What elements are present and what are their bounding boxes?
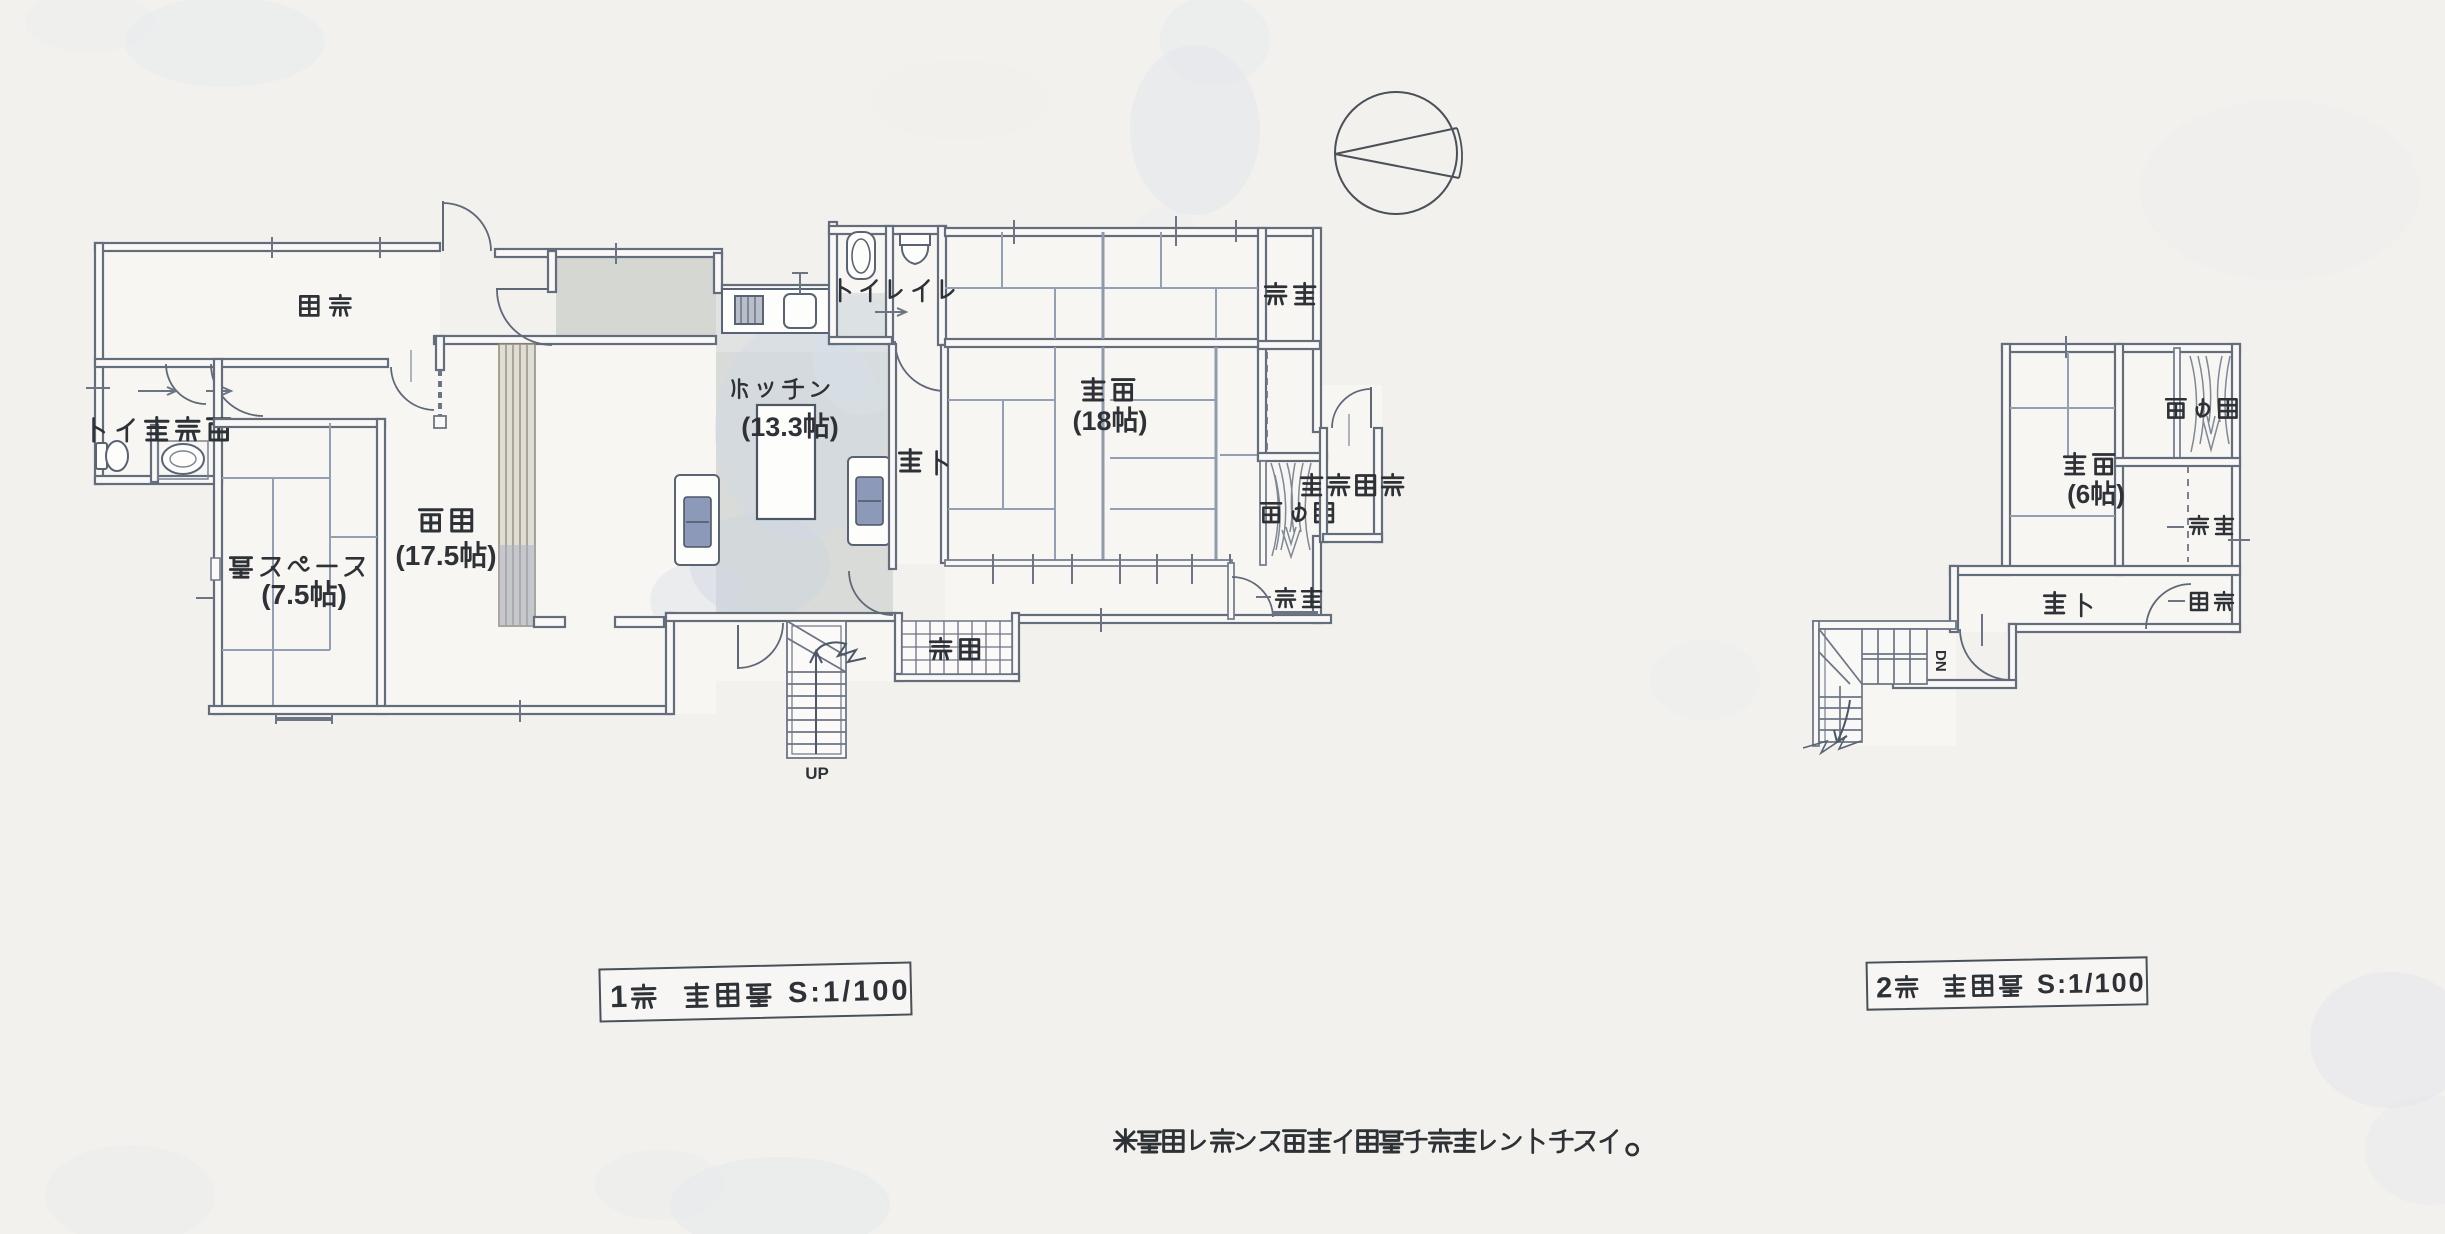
svg-text:S:1/100: S:1/100 [2037, 967, 2146, 999]
svg-text:(6帖): (6帖) [2067, 479, 2125, 509]
svg-text:2: 2 [1876, 972, 1893, 1004]
svg-text:S:1/100: S:1/100 [788, 974, 911, 1009]
svg-text:(7.5帖): (7.5帖) [261, 579, 347, 610]
svg-text:UP: UP [805, 764, 829, 783]
svg-text:1: 1 [610, 979, 628, 1014]
svg-text:DN: DN [1932, 650, 1949, 672]
svg-text:(17.5帖): (17.5帖) [395, 540, 496, 571]
svg-text:(18帖): (18帖) [1072, 406, 1147, 436]
svg-text:(13.3帖): (13.3帖) [741, 412, 839, 442]
